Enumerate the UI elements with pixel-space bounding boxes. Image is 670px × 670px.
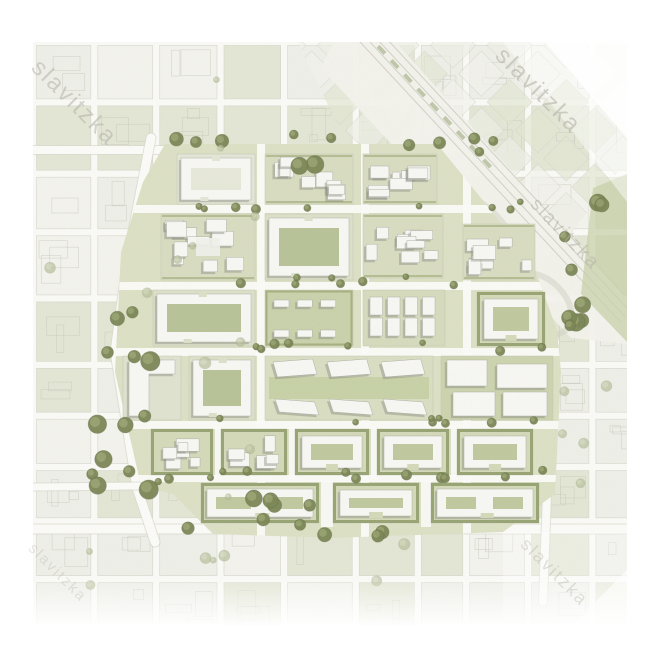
- masterplan-map: slavitzka slavitzka slavitzka slavitzka …: [33, 42, 627, 625]
- map-graphic: [33, 42, 627, 625]
